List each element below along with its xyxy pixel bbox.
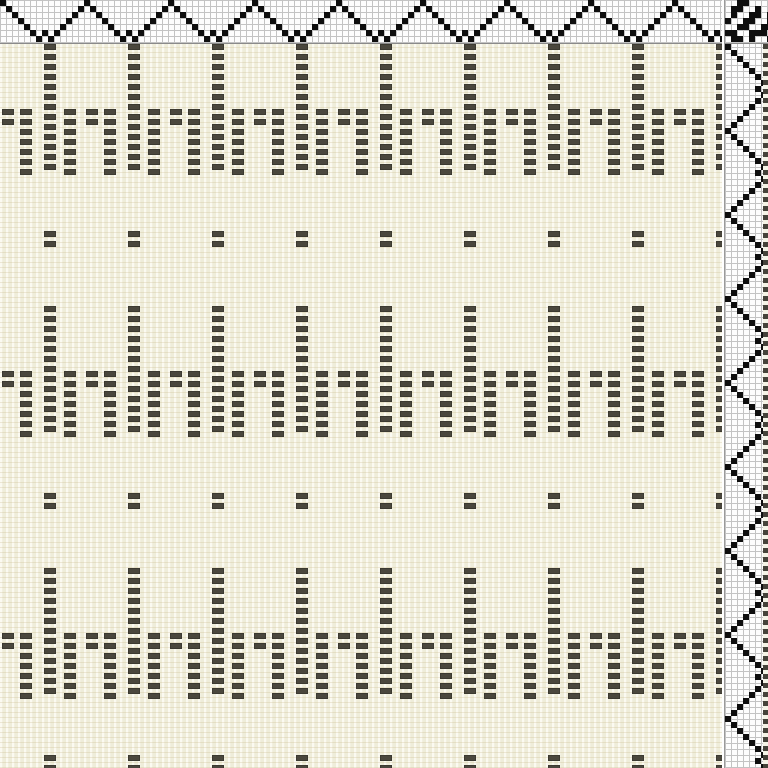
tieup-cell[interactable] <box>737 36 743 42</box>
threading-cell[interactable] <box>372 36 378 42</box>
drawdown-mark <box>44 668 56 674</box>
drawdown-mark <box>128 396 140 402</box>
drawdown-mark <box>212 84 224 90</box>
edge-mark <box>763 620 768 625</box>
drawdown-mark <box>568 169 580 175</box>
tieup-cell[interactable] <box>749 18 755 24</box>
treadling-cell[interactable] <box>743 194 749 200</box>
drawdown-mark <box>568 119 580 125</box>
treadling-cell[interactable] <box>731 710 737 716</box>
drawdown-mark <box>356 119 368 125</box>
drawdown-mark <box>212 104 224 110</box>
drawdown-mark <box>148 139 160 145</box>
threading-cell[interactable] <box>402 18 408 24</box>
drawdown-mark <box>608 663 620 669</box>
drawdown-mark <box>652 653 664 659</box>
drawdown-mark <box>356 149 368 155</box>
treadling-cell[interactable] <box>743 110 749 116</box>
threading-cell[interactable] <box>330 6 336 12</box>
drawdown-mark <box>692 683 704 689</box>
edge-mark <box>763 458 768 463</box>
treadling-cell[interactable] <box>755 686 761 692</box>
edge-mark <box>763 656 768 661</box>
drawdown-mark <box>464 134 476 140</box>
tieup-cell[interactable] <box>731 12 737 18</box>
drawdown-treadling-divider <box>722 0 724 768</box>
drawdown-mark <box>422 643 434 649</box>
threading-cell[interactable] <box>414 6 420 12</box>
drawdown-mark <box>524 411 536 417</box>
threading-cell[interactable] <box>486 18 492 24</box>
drawdown-mark <box>44 678 56 684</box>
drawdown-mark <box>692 411 704 417</box>
drawdown-mark <box>400 119 412 125</box>
drawdown-mark <box>272 119 284 125</box>
tieup-cell[interactable] <box>725 18 731 24</box>
threading-cell[interactable] <box>582 6 588 12</box>
drawdown-mark <box>188 391 200 397</box>
drawdown-mark <box>464 638 476 644</box>
drawdown-mark <box>356 371 368 377</box>
drawdown-mark <box>524 421 536 427</box>
threading-cell[interactable] <box>324 12 330 18</box>
drawdown-mark <box>464 164 476 170</box>
drawdown-mark <box>44 114 56 120</box>
drawdown-mark <box>128 638 140 644</box>
threading-cell[interactable] <box>60 24 66 30</box>
drawdown-mark <box>590 371 602 377</box>
drawdown-mark <box>104 411 116 417</box>
threading-cell[interactable] <box>240 12 246 18</box>
drawdown-mark <box>104 673 116 679</box>
drawdown-mark <box>128 356 140 362</box>
threading-cell[interactable] <box>66 18 72 24</box>
threading-cell[interactable] <box>222 30 228 36</box>
drawdown-mark <box>464 668 476 674</box>
tieup-cell[interactable] <box>755 12 761 18</box>
drawdown-mark <box>44 755 56 761</box>
treadling-cell[interactable] <box>731 626 737 632</box>
drawdown-mark <box>170 633 182 639</box>
drawdown-mark <box>464 376 476 382</box>
threading-grid[interactable] <box>0 0 722 44</box>
threading-cell[interactable] <box>300 36 306 42</box>
threading-cell[interactable] <box>384 36 390 42</box>
drawdown-mark <box>674 381 686 387</box>
treadling-cell[interactable] <box>737 536 743 542</box>
drawdown-mark <box>212 493 224 499</box>
drawdown-mark <box>652 431 664 437</box>
threading-cell[interactable] <box>318 18 324 24</box>
threading-cell[interactable] <box>156 12 162 18</box>
edge-mark <box>763 71 768 76</box>
treadling-cell[interactable] <box>731 542 737 548</box>
threading-cell[interactable] <box>204 36 210 42</box>
drawdown-mark <box>104 633 116 639</box>
drawdown-mark <box>632 231 644 237</box>
drawdown-mark <box>128 426 140 432</box>
threading-cell[interactable] <box>654 18 660 24</box>
drawdown-mark <box>464 241 476 247</box>
treadling-cell[interactable] <box>737 368 743 374</box>
drawdown-mark <box>380 598 392 604</box>
drawdown-mark <box>148 149 160 155</box>
threading-cell[interactable] <box>228 24 234 30</box>
drawdown-mark <box>380 84 392 90</box>
edge-mark <box>763 404 768 409</box>
drawdown-mark <box>316 421 328 427</box>
drawdown-mark <box>506 381 518 387</box>
drawdown-mark <box>272 663 284 669</box>
drawdown-mark <box>692 129 704 135</box>
threading-cell[interactable] <box>150 18 156 24</box>
drawdown-mark <box>380 493 392 499</box>
threading-cell[interactable] <box>492 12 498 18</box>
drawdown-mark <box>148 159 160 165</box>
drawdown-mark <box>400 109 412 115</box>
threading-cell[interactable] <box>468 36 474 42</box>
drawdown-mark <box>232 663 244 669</box>
drawdown-mark <box>296 94 308 100</box>
threading-cell[interactable] <box>552 36 558 42</box>
threading-cell[interactable] <box>576 12 582 18</box>
threading-cell[interactable] <box>72 12 78 18</box>
drawdown-mark <box>632 406 644 412</box>
treadling-cell[interactable] <box>755 602 761 608</box>
threading-cell[interactable] <box>288 36 294 42</box>
drawdown-mark <box>692 653 704 659</box>
drawdown-mark <box>652 673 664 679</box>
drawdown-mark <box>484 159 496 165</box>
treadling-cell[interactable] <box>737 704 743 710</box>
treadling-cell[interactable] <box>743 698 749 704</box>
drawdown-mark <box>64 391 76 397</box>
threading-cell[interactable] <box>708 36 714 42</box>
treadling-cell[interactable] <box>749 356 755 362</box>
drawdown-mark <box>692 401 704 407</box>
drawdown-mark <box>128 231 140 237</box>
drawdown-mark <box>128 578 140 584</box>
drawdown-mark <box>632 688 644 694</box>
drawdown-mark <box>316 371 328 377</box>
drawdown-mark <box>524 401 536 407</box>
edge-mark <box>763 359 768 364</box>
threading-cell[interactable] <box>396 24 402 30</box>
edge-mark <box>763 593 768 598</box>
drawdown-mark <box>440 663 452 669</box>
drawdown-mark <box>64 421 76 427</box>
drawdown-mark <box>674 119 686 125</box>
drawdown-mark <box>188 401 200 407</box>
threading-cell[interactable] <box>408 12 414 18</box>
drawdown-mark <box>338 371 350 377</box>
edge-mark <box>763 431 768 436</box>
drawdown-mark <box>128 336 140 342</box>
drawdown-mark <box>632 74 644 80</box>
drawdown-mark <box>548 356 560 362</box>
edge-mark <box>763 206 768 211</box>
edge-mark <box>763 602 768 607</box>
threading-cell[interactable] <box>138 30 144 36</box>
drawdown-mark <box>524 431 536 437</box>
drawdown-mark <box>296 366 308 372</box>
drawdown-mark <box>440 431 452 437</box>
threading-cell[interactable] <box>666 6 672 12</box>
treadling-cell[interactable] <box>755 518 761 524</box>
tieup-cell[interactable] <box>743 0 749 6</box>
edge-mark <box>763 323 768 328</box>
threading-cell[interactable] <box>216 36 222 42</box>
drawdown-mark <box>104 169 116 175</box>
treadling-cell[interactable] <box>755 350 761 356</box>
drawdown-mark <box>484 653 496 659</box>
drawdown-mark <box>632 164 644 170</box>
threading-cell[interactable] <box>642 30 648 36</box>
treadling-cell[interactable] <box>737 620 743 626</box>
drawdown-mark <box>64 129 76 135</box>
drawdown-mark <box>148 633 160 639</box>
treadling-cell[interactable] <box>755 266 761 272</box>
drawdown-mark <box>568 149 580 155</box>
drawdown-mark <box>272 421 284 427</box>
treadling-cell[interactable] <box>737 452 743 458</box>
drawdown-mark <box>20 673 32 679</box>
drawdown-mark <box>232 693 244 699</box>
edge-mark <box>763 125 768 130</box>
threading-cell[interactable] <box>234 18 240 24</box>
drawdown-mark <box>212 326 224 332</box>
drawdown-mark <box>316 683 328 689</box>
threading-cell[interactable] <box>474 30 480 36</box>
drawdown-mark <box>464 648 476 654</box>
tieup-cell[interactable] <box>737 6 743 12</box>
drawdown-mark <box>484 411 496 417</box>
drawdown-mark <box>568 663 580 669</box>
threading-cell[interactable] <box>312 24 318 30</box>
drawdown-mark <box>380 346 392 352</box>
drawdown-mark <box>380 406 392 412</box>
drawdown-mark <box>86 109 98 115</box>
drawdown-mark <box>296 64 308 70</box>
drawdown-mark <box>2 109 14 115</box>
tieup-grid[interactable] <box>724 0 768 44</box>
threading-cell[interactable] <box>570 18 576 24</box>
drawdown-mark <box>20 149 32 155</box>
drawdown-mark <box>440 119 452 125</box>
threading-cell[interactable] <box>540 36 546 42</box>
drawdown-mark <box>506 633 518 639</box>
drawdown-mark <box>128 241 140 247</box>
drawdown-mark <box>608 129 620 135</box>
threading-cell[interactable] <box>246 6 252 12</box>
treadling-cell[interactable] <box>749 692 755 698</box>
drawdown-mark <box>590 119 602 125</box>
treadling-cell[interactable] <box>743 614 749 620</box>
treadling-cell[interactable] <box>731 206 737 212</box>
drawdown-mark <box>632 618 644 624</box>
drawdown-mark <box>272 159 284 165</box>
drawdown-mark <box>380 638 392 644</box>
drawdown-mark <box>254 633 266 639</box>
drawdown-mark <box>188 109 200 115</box>
threading-cell[interactable] <box>564 24 570 30</box>
drawdown-mark <box>464 578 476 584</box>
drawdown-mark <box>548 396 560 402</box>
drawdown-mark <box>440 421 452 427</box>
drawdown-mark <box>44 94 56 100</box>
threading-cell[interactable] <box>306 30 312 36</box>
edge-mark <box>763 737 768 742</box>
treadling-cell[interactable] <box>749 608 755 614</box>
treadling-cell[interactable] <box>743 446 749 452</box>
drawdown-mark <box>568 673 580 679</box>
edge-mark <box>763 170 768 175</box>
drawdown-mark <box>272 683 284 689</box>
drawdown-mark <box>128 124 140 130</box>
drawdown-mark <box>400 421 412 427</box>
drawdown-mark <box>440 149 452 155</box>
drawdown-mark <box>356 643 368 649</box>
drawdown-mark <box>632 416 644 422</box>
drawdown-mark <box>422 381 434 387</box>
threading-cell[interactable] <box>480 24 486 30</box>
drawdown-mark <box>316 159 328 165</box>
drawdown-mark <box>296 618 308 624</box>
threading-cell[interactable] <box>558 30 564 36</box>
treadling-cell[interactable] <box>731 290 737 296</box>
drawdown-mark <box>128 74 140 80</box>
drawdown-mark <box>380 356 392 362</box>
drawdown-mark <box>296 144 308 150</box>
edge-mark <box>763 197 768 202</box>
threading-cell[interactable] <box>648 24 654 30</box>
treadling-cell[interactable] <box>749 524 755 530</box>
treadling-cell[interactable] <box>755 98 761 104</box>
drawdown-mark <box>44 568 56 574</box>
threading-cell[interactable] <box>636 36 642 42</box>
drawdown-mark <box>548 578 560 584</box>
drawdown-mark <box>64 109 76 115</box>
drawdown-mark <box>464 658 476 664</box>
drawdown-mark <box>188 411 200 417</box>
treadling-cell[interactable] <box>749 188 755 194</box>
drawdown-mark <box>128 668 140 674</box>
drawdown-mark <box>64 401 76 407</box>
threading-cell[interactable] <box>144 24 150 30</box>
treadling-cell[interactable] <box>749 104 755 110</box>
drawdown-mark <box>104 683 116 689</box>
threading-cell[interactable] <box>36 36 42 42</box>
drawdown-mark <box>212 588 224 594</box>
drawdown-mark <box>212 124 224 130</box>
drawdown-mark <box>464 326 476 332</box>
drawdown-mark <box>20 643 32 649</box>
treadling-cell[interactable] <box>731 374 737 380</box>
treadling-cell[interactable] <box>743 278 749 284</box>
drawdown-mark <box>296 406 308 412</box>
edge-mark <box>763 449 768 454</box>
drawdown-mark <box>44 396 56 402</box>
threading-cell[interactable] <box>120 36 126 42</box>
drawdown-mark <box>632 588 644 594</box>
threading-cell[interactable] <box>390 30 396 36</box>
drawdown-mark <box>400 371 412 377</box>
drawdown-mark <box>356 411 368 417</box>
drawdown-mark <box>632 658 644 664</box>
threading-cell[interactable] <box>498 6 504 12</box>
edge-mark <box>763 332 768 337</box>
drawdown-mark <box>232 401 244 407</box>
drawdown-mark <box>380 568 392 574</box>
drawdown-mark <box>464 74 476 80</box>
drawdown-mark <box>64 139 76 145</box>
treadling-cell[interactable] <box>755 182 761 188</box>
treadling-grid[interactable] <box>724 44 763 768</box>
drawdown-mark <box>524 129 536 135</box>
drawdown-mark <box>652 411 664 417</box>
drawdown-mark <box>524 109 536 115</box>
drawdown-mark <box>692 431 704 437</box>
drawdown-mark <box>608 109 620 115</box>
drawdown-mark <box>652 421 664 427</box>
drawdown-mark <box>128 64 140 70</box>
drawdown-mark <box>632 154 644 160</box>
threading-cell[interactable] <box>624 36 630 42</box>
drawdown-mark <box>400 663 412 669</box>
threading-cell[interactable] <box>660 12 666 18</box>
drawdown-mark <box>44 638 56 644</box>
drawdown-mark <box>440 391 452 397</box>
treadling-cell[interactable] <box>737 284 743 290</box>
edge-mark <box>763 584 768 589</box>
drawdown-mark <box>212 416 224 422</box>
threading-cell[interactable] <box>54 30 60 36</box>
treadling-cell[interactable] <box>743 530 749 536</box>
drawdown-mark <box>64 381 76 387</box>
threading-cell[interactable] <box>132 36 138 42</box>
treadling-cell[interactable] <box>749 272 755 278</box>
threading-cell[interactable] <box>456 36 462 42</box>
edge-mark <box>763 269 768 274</box>
drawdown-mark <box>380 628 392 634</box>
threading-cell[interactable] <box>162 6 168 12</box>
drawdown-mark <box>296 316 308 322</box>
threading-cell[interactable] <box>78 6 84 12</box>
drawdown-mark <box>632 648 644 654</box>
treadling-cell[interactable] <box>743 362 749 368</box>
drawdown-mark <box>104 129 116 135</box>
treadling-cell[interactable] <box>731 458 737 464</box>
treadling-cell[interactable] <box>737 116 743 122</box>
treadling-cell[interactable] <box>749 440 755 446</box>
tieup-cell[interactable] <box>749 36 755 42</box>
treadling-cell[interactable] <box>731 122 737 128</box>
drawdown-mark <box>548 618 560 624</box>
drawdown-mark <box>316 169 328 175</box>
drawdown-mark <box>464 124 476 130</box>
drawdown-mark <box>608 421 620 427</box>
drawdown-mark <box>422 633 434 639</box>
edge-mark <box>763 764 768 768</box>
threading-cell[interactable] <box>48 36 54 42</box>
treadling-cell[interactable] <box>737 200 743 206</box>
drawdown-mark <box>20 169 32 175</box>
drawdown-mark <box>652 139 664 145</box>
drawdown-mark <box>296 568 308 574</box>
drawdown-mark <box>170 643 182 649</box>
edge-mark <box>763 44 768 49</box>
treadling-cell[interactable] <box>755 434 761 440</box>
